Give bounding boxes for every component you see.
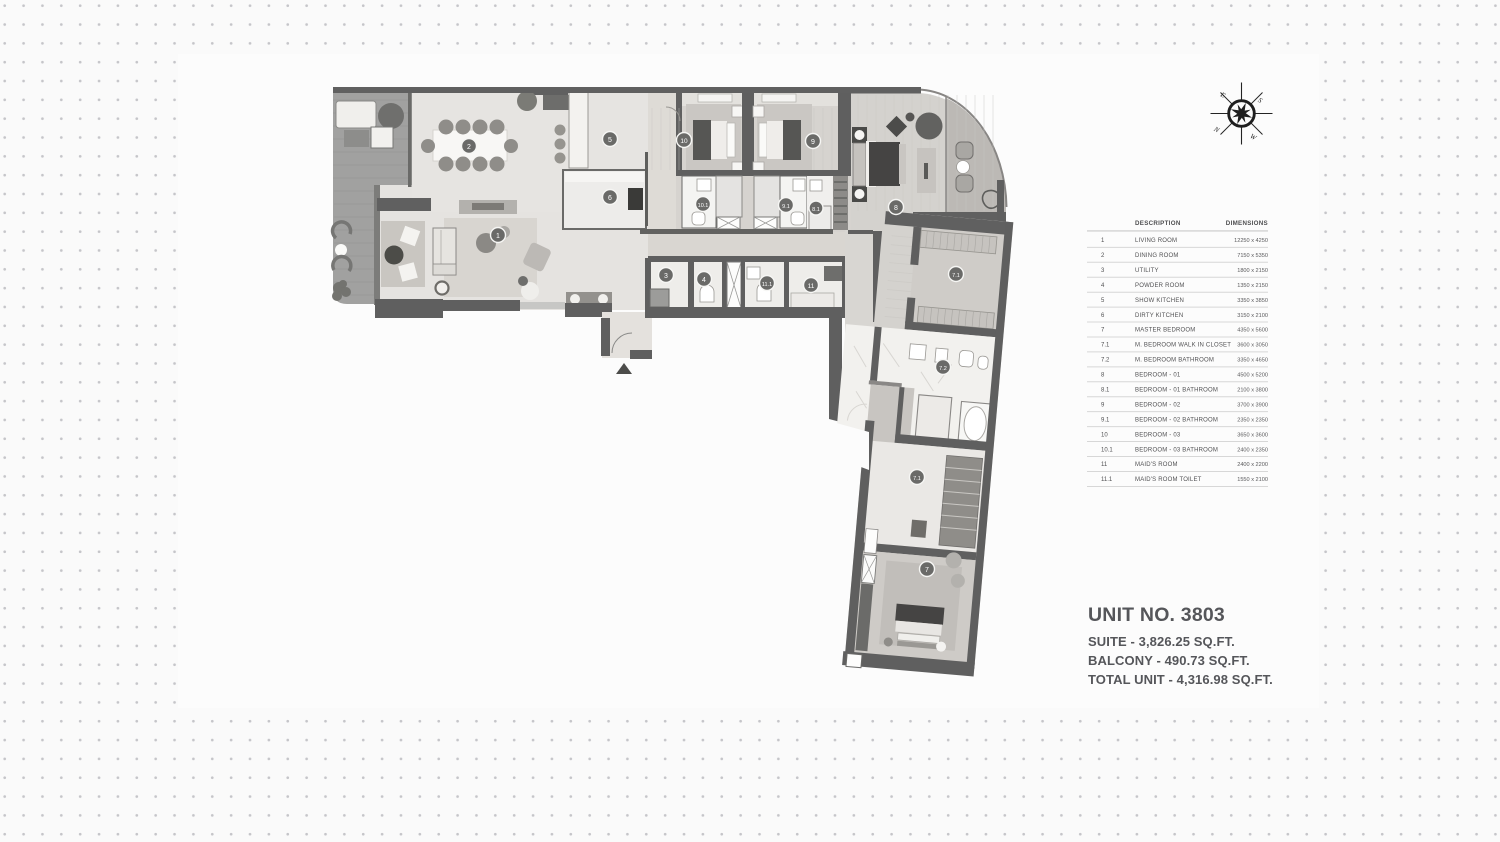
svg-text:TOTAL UNIT - 4,316.98 SQ.FT.: TOTAL UNIT - 4,316.98 SQ.FT.	[1088, 672, 1273, 687]
svg-text:POWDER ROOM: POWDER ROOM	[1135, 283, 1185, 289]
svg-text:11: 11	[1101, 462, 1108, 468]
svg-text:7150 x 5350: 7150 x 5350	[1237, 253, 1268, 259]
svg-text:4: 4	[702, 277, 706, 284]
svg-text:7.1: 7.1	[1101, 343, 1110, 349]
svg-text:3650 x 3600: 3650 x 3600	[1237, 432, 1268, 438]
svg-text:11: 11	[808, 283, 815, 290]
svg-text:10.1: 10.1	[1101, 447, 1113, 453]
svg-text:1550 x 2100: 1550 x 2100	[1237, 477, 1268, 483]
svg-text:3350 x 4650: 3350 x 4650	[1237, 358, 1268, 364]
svg-text:8.1: 8.1	[1101, 388, 1110, 394]
svg-text:4500 x 5200: 4500 x 5200	[1237, 373, 1268, 379]
svg-text:9.1: 9.1	[782, 204, 790, 210]
svg-text:8.1: 8.1	[812, 207, 820, 213]
svg-text:2100 x 3800: 2100 x 3800	[1237, 388, 1268, 394]
svg-text:12250 x 4250: 12250 x 4250	[1234, 238, 1268, 244]
svg-text:2400 x 2350: 2400 x 2350	[1237, 447, 1268, 453]
svg-text:5: 5	[608, 137, 612, 144]
svg-text:3600 x 3050: 3600 x 3050	[1237, 343, 1268, 349]
svg-text:9.1: 9.1	[1101, 417, 1110, 423]
svg-text:2: 2	[467, 144, 471, 151]
svg-text:7.2: 7.2	[939, 366, 947, 372]
svg-text:DINING ROOM: DINING ROOM	[1135, 253, 1179, 259]
svg-text:SHOW KITCHEN: SHOW KITCHEN	[1135, 298, 1184, 304]
svg-text:1800 x 2150: 1800 x 2150	[1237, 268, 1268, 274]
svg-text:10.1: 10.1	[698, 203, 709, 209]
svg-text:1350 x 2150: 1350 x 2150	[1237, 283, 1268, 289]
svg-text:6: 6	[608, 195, 612, 202]
svg-text:BEDROOM - 03: BEDROOM - 03	[1135, 432, 1181, 438]
svg-text:3: 3	[664, 273, 668, 280]
svg-text:7.2: 7.2	[1101, 358, 1110, 364]
svg-text:9: 9	[811, 139, 815, 146]
svg-text:UNIT NO. 3803: UNIT NO. 3803	[1088, 604, 1225, 626]
svg-text:7.1: 7.1	[913, 476, 921, 482]
svg-text:10: 10	[680, 138, 688, 145]
svg-text:3350 x 3850: 3350 x 3850	[1237, 298, 1268, 304]
svg-text:2350 x 2350: 2350 x 2350	[1237, 417, 1268, 423]
svg-text:2400 x 2200: 2400 x 2200	[1237, 462, 1268, 468]
svg-text:7.1: 7.1	[952, 273, 960, 279]
svg-text:MAID'S ROOM TOILET: MAID'S ROOM TOILET	[1135, 477, 1202, 483]
svg-text:UTILITY: UTILITY	[1135, 268, 1159, 274]
svg-text:BEDROOM - 02: BEDROOM - 02	[1135, 402, 1181, 408]
svg-text:SUITE - 3,826.25 SQ.FT.: SUITE - 3,826.25 SQ.FT.	[1088, 634, 1235, 649]
svg-text:10: 10	[1101, 432, 1108, 438]
svg-text:BEDROOM - 02 BATHROOM: BEDROOM - 02 BATHROOM	[1135, 417, 1218, 423]
svg-text:M. BEDROOM BATHROOM: M. BEDROOM BATHROOM	[1135, 358, 1214, 364]
svg-text:8: 8	[894, 205, 898, 212]
svg-text:MASTER BEDROOM: MASTER BEDROOM	[1135, 328, 1195, 334]
svg-text:3150 x 2100: 3150 x 2100	[1237, 313, 1268, 319]
svg-text:BALCONY - 490.73 SQ.FT.: BALCONY - 490.73 SQ.FT.	[1088, 653, 1250, 668]
svg-text:LIVING ROOM: LIVING ROOM	[1135, 238, 1177, 244]
svg-text:3700 x 3900: 3700 x 3900	[1237, 402, 1268, 408]
svg-text:11.1: 11.1	[762, 282, 772, 288]
svg-text:BEDROOM - 01 BATHROOM: BEDROOM - 01 BATHROOM	[1135, 388, 1218, 394]
svg-text:BEDROOM - 03 BATHROOM: BEDROOM - 03 BATHROOM	[1135, 447, 1218, 453]
svg-text:DESCRIPTION: DESCRIPTION	[1135, 220, 1181, 227]
svg-text:7: 7	[925, 567, 929, 574]
svg-text:BEDROOM - 01: BEDROOM - 01	[1135, 373, 1181, 379]
svg-text:DIRTY KITCHEN: DIRTY KITCHEN	[1135, 313, 1183, 319]
svg-text:4350 x 5600: 4350 x 5600	[1237, 328, 1268, 334]
svg-text:DIMENSIONS: DIMENSIONS	[1226, 220, 1268, 227]
svg-text:11.1: 11.1	[1101, 477, 1113, 483]
svg-text:1: 1	[496, 233, 500, 240]
svg-text:M. BEDROOM WALK IN CLOSET: M. BEDROOM WALK IN CLOSET	[1135, 343, 1231, 349]
svg-text:MAID'S ROOM: MAID'S ROOM	[1135, 462, 1178, 468]
